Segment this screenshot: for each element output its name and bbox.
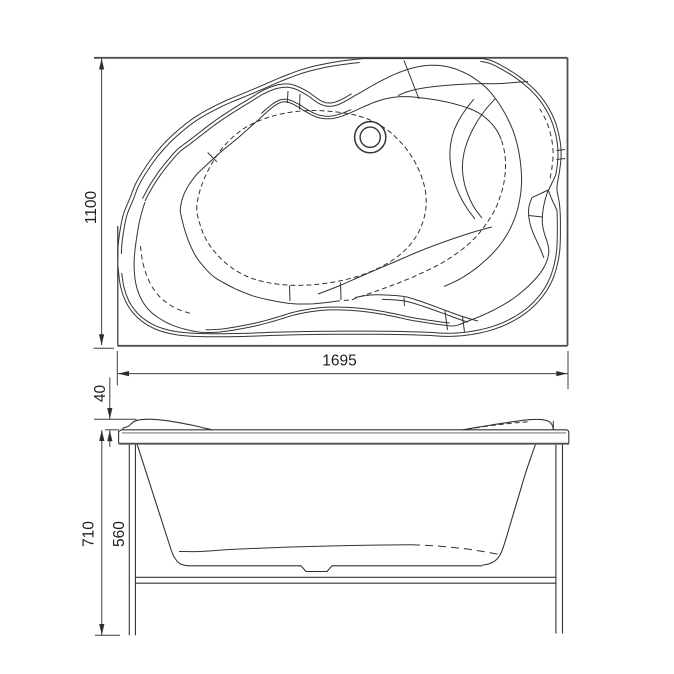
svg-text:710: 710 [80, 521, 97, 547]
svg-text:1100: 1100 [83, 190, 100, 224]
svg-text:40: 40 [92, 385, 109, 403]
svg-text:560: 560 [111, 521, 128, 547]
svg-text:1695: 1695 [322, 353, 356, 370]
